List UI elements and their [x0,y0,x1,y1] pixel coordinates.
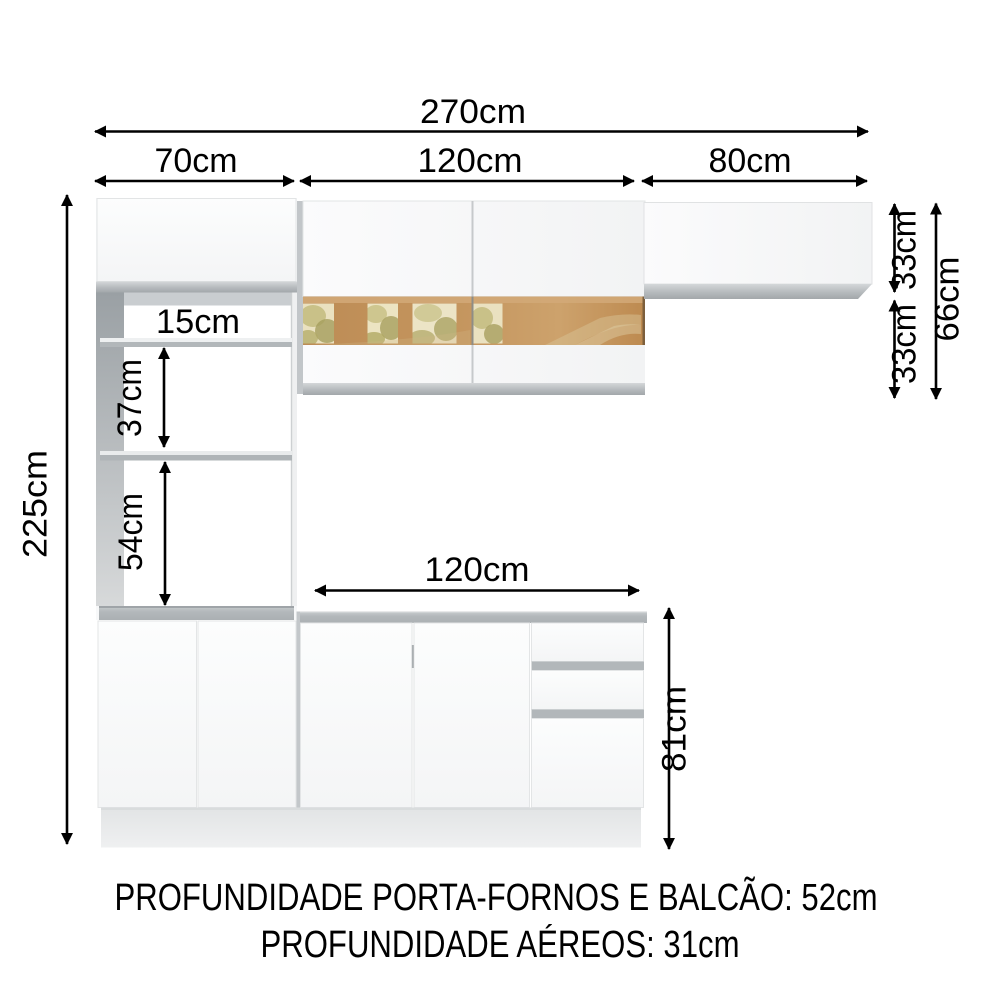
svg-text:70cm: 70cm [155,142,238,180]
svg-text:66cm: 66cm [929,257,967,342]
svg-text:225cm: 225cm [17,450,55,558]
svg-text:120cm: 120cm [425,551,530,589]
svg-text:80cm: 80cm [709,142,792,180]
svg-text:PROFUNDIDADE AÉREOS: 31cm: PROFUNDIDADE AÉREOS: 31cm [261,923,740,966]
svg-text:120cm: 120cm [418,142,523,180]
svg-text:PROFUNDIDADE PORTA-FORNOS E BA: PROFUNDIDADE PORTA-FORNOS E BALCÃO: 52cm [115,876,878,919]
svg-text:15cm: 15cm [156,303,240,341]
svg-text:81cm: 81cm [656,686,694,772]
svg-text:270cm: 270cm [420,93,526,131]
svg-text:54cm: 54cm [112,493,150,571]
svg-text:33cm: 33cm [886,210,924,290]
svg-text:37cm: 37cm [111,359,149,437]
svg-text:33cm: 33cm [886,304,924,384]
